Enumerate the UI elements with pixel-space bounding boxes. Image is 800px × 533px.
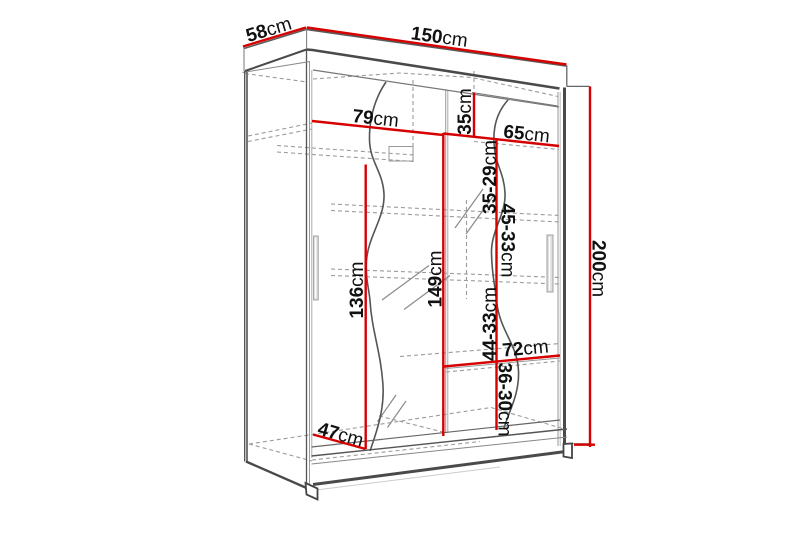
svg-text:200cm: 200cm (588, 240, 609, 297)
svg-text:44-33cm: 44-33cm (480, 287, 501, 361)
svg-text:36-30cm: 36-30cm (494, 363, 515, 437)
svg-text:149cm: 149cm (426, 250, 447, 307)
svg-text:45-33cm: 45-33cm (497, 204, 518, 278)
svg-text:35cm: 35cm (455, 88, 476, 134)
svg-text:136cm: 136cm (347, 261, 368, 318)
svg-text:72cm: 72cm (501, 336, 549, 361)
